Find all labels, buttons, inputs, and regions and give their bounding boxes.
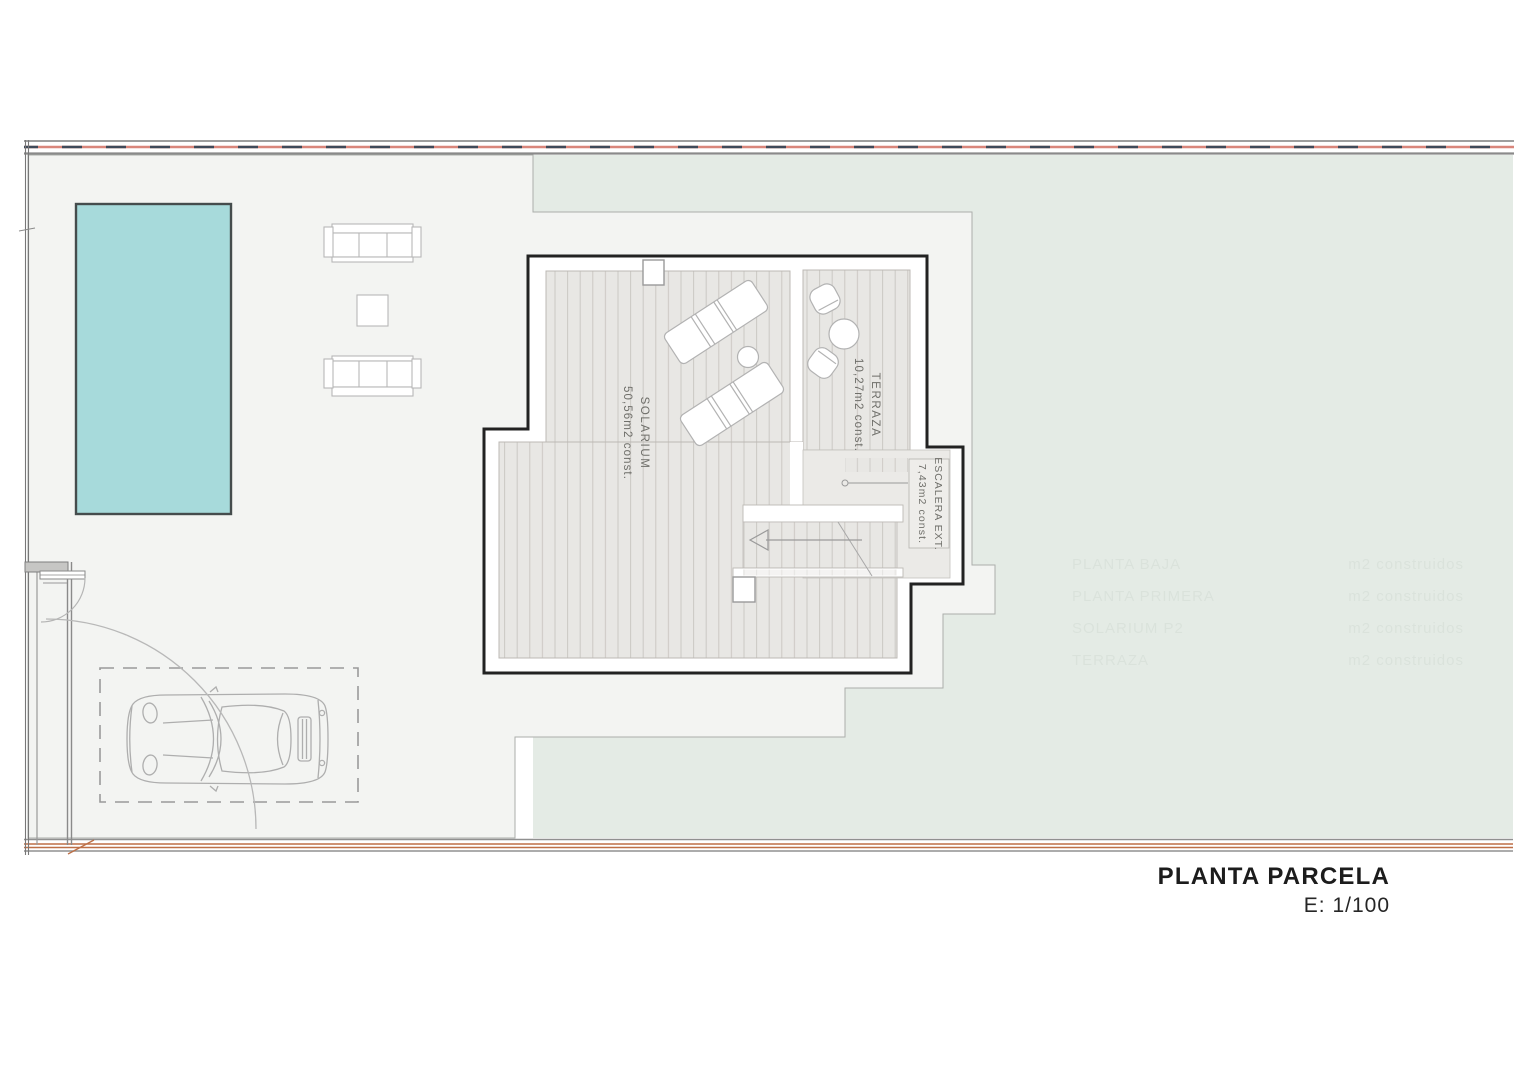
watermark-row: SOLARIUM P2 m2 construidos — [1072, 620, 1464, 637]
watermark-row: PLANTA BAJA m2 construidos — [1072, 556, 1464, 573]
escalera-label-box — [909, 459, 949, 548]
terrace-table — [829, 319, 859, 349]
surfaces-watermark: PLANTA BAJA m2 construidos PLANTA PRIMER… — [1072, 556, 1464, 684]
sofa-bottom — [324, 356, 421, 396]
car — [127, 687, 328, 791]
garden-table — [357, 295, 388, 326]
floor-plan-canvas: SOLARIUM 50,56m2 const. TERRAZA 10,27m2 … — [0, 0, 1527, 1080]
drawing-title: PLANTA PARCELA — [1158, 863, 1390, 891]
watermark-row: TERRAZA m2 construidos — [1072, 652, 1464, 669]
stair-treads — [743, 522, 897, 568]
side-table — [738, 347, 759, 368]
divider-wall — [790, 442, 803, 506]
stair-pillar — [733, 577, 755, 602]
sofa-top — [324, 224, 421, 262]
swimming-pool — [76, 204, 231, 514]
boundary-top — [24, 141, 1514, 154]
boundary-bottom — [24, 840, 1513, 855]
watermark-row: PLANTA PRIMERA m2 construidos — [1072, 588, 1464, 605]
stair-landing — [743, 505, 903, 522]
site-plan-drawing — [0, 0, 1527, 1080]
roof-skylight — [643, 260, 664, 285]
drawing-scale: E: 1/100 — [1158, 894, 1390, 918]
title-block: PLANTA PARCELA E: 1/100 — [1158, 863, 1390, 918]
